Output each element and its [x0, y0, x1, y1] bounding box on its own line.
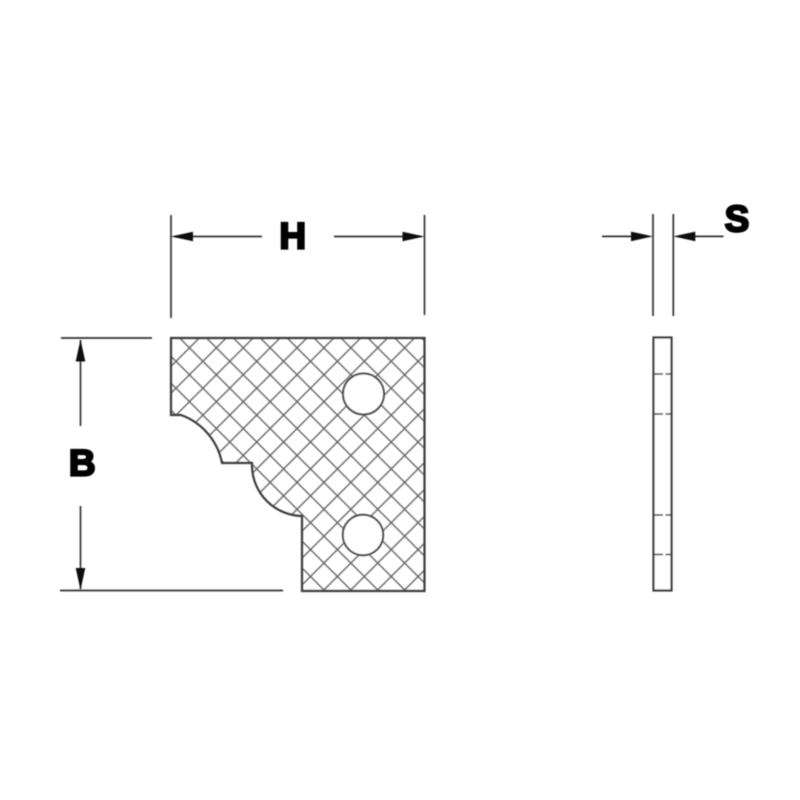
svg-text:S: S: [725, 199, 750, 240]
svg-text:B: B: [69, 443, 96, 484]
svg-text:H: H: [279, 216, 306, 257]
